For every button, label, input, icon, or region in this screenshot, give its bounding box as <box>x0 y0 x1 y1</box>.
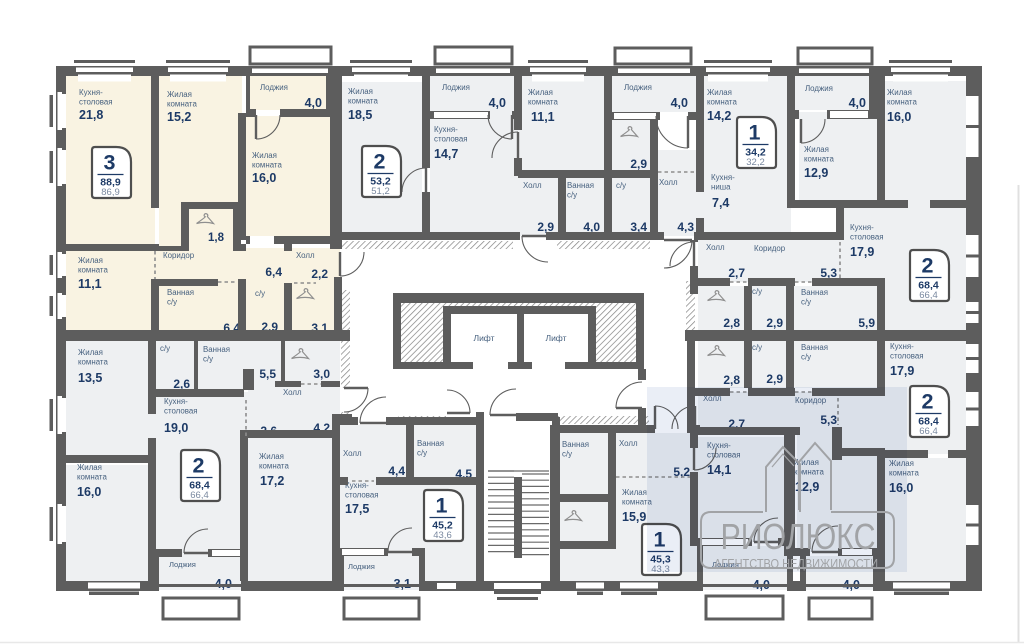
svg-text:2: 2 <box>193 454 205 478</box>
svg-text:Лоджия: Лоджия <box>805 84 833 93</box>
svg-text:с/у: с/у <box>616 181 626 190</box>
svg-text:17,5: 17,5 <box>345 502 369 516</box>
svg-text:2: 2 <box>374 150 386 174</box>
svg-text:5,3: 5,3 <box>820 266 837 280</box>
svg-text:11,1: 11,1 <box>531 110 555 124</box>
svg-text:18,5: 18,5 <box>348 108 372 122</box>
svg-text:2,9: 2,9 <box>766 316 783 330</box>
svg-text:11,1: 11,1 <box>78 277 102 291</box>
svg-text:2,2: 2,2 <box>311 267 328 281</box>
svg-text:12,9: 12,9 <box>804 166 828 180</box>
svg-text:86,9: 86,9 <box>101 187 120 198</box>
svg-text:Лоджия: Лоджия <box>348 562 375 571</box>
svg-text:5,9: 5,9 <box>858 316 875 330</box>
svg-text:Лифт: Лифт <box>545 333 566 343</box>
svg-text:7,4: 7,4 <box>712 196 729 210</box>
svg-text:с/у: с/у <box>752 343 762 352</box>
svg-text:Холл: Холл <box>706 243 725 252</box>
svg-text:2,8: 2,8 <box>723 373 740 387</box>
svg-text:14,7: 14,7 <box>434 147 458 161</box>
svg-text:6,4: 6,4 <box>265 265 282 279</box>
svg-text:4,0: 4,0 <box>489 96 506 110</box>
svg-text:Лоджия: Лоджия <box>442 83 470 92</box>
svg-text:Коридор: Коридор <box>754 244 786 253</box>
svg-text:17,9: 17,9 <box>850 245 874 259</box>
svg-text:2,9: 2,9 <box>766 372 783 386</box>
svg-text:4,0: 4,0 <box>849 96 866 110</box>
svg-text:Холл: Холл <box>659 178 678 187</box>
svg-text:17,9: 17,9 <box>890 364 914 378</box>
svg-text:16,0: 16,0 <box>77 485 101 499</box>
svg-text:4,0: 4,0 <box>583 220 600 234</box>
svg-text:16,0: 16,0 <box>887 110 911 124</box>
svg-text:Холл: Холл <box>343 449 362 458</box>
svg-text:4,0: 4,0 <box>671 96 688 110</box>
svg-text:32,2: 32,2 <box>746 157 765 168</box>
svg-text:Холл: Холл <box>283 388 302 397</box>
svg-text:Лоджия: Лоджия <box>169 560 196 569</box>
svg-text:Лоджия: Лоджия <box>260 83 288 92</box>
svg-text:17,2: 17,2 <box>260 474 284 488</box>
svg-text:19,0: 19,0 <box>164 421 188 435</box>
svg-text:Лифт: Лифт <box>473 333 494 343</box>
svg-text:3: 3 <box>104 151 116 175</box>
svg-text:1: 1 <box>436 494 448 518</box>
svg-text:Коридор: Коридор <box>163 251 195 260</box>
svg-text:2,6: 2,6 <box>173 377 190 391</box>
svg-text:13,5: 13,5 <box>78 371 102 385</box>
svg-text:3,0: 3,0 <box>313 367 330 381</box>
svg-text:с/у: с/у <box>255 289 265 298</box>
svg-text:66,4: 66,4 <box>190 490 209 501</box>
svg-text:4,0: 4,0 <box>305 96 322 110</box>
svg-text:16,0: 16,0 <box>252 171 276 185</box>
svg-text:21,8: 21,8 <box>79 108 103 122</box>
svg-text:с/у: с/у <box>160 344 170 353</box>
svg-text:2: 2 <box>922 254 934 278</box>
svg-text:Холл: Холл <box>296 251 315 260</box>
svg-text:14,2: 14,2 <box>707 109 731 123</box>
svg-text:2,7: 2,7 <box>728 266 745 280</box>
svg-text:15,2: 15,2 <box>167 110 191 124</box>
svg-text:Лоджия: Лоджия <box>624 83 652 92</box>
svg-text:2,8: 2,8 <box>723 316 740 330</box>
svg-text:с/у: с/у <box>752 287 762 296</box>
svg-text:4,4: 4,4 <box>388 464 405 478</box>
svg-text:1: 1 <box>749 121 761 145</box>
svg-text:4,3: 4,3 <box>677 220 694 234</box>
svg-text:2: 2 <box>922 390 934 414</box>
svg-text:5,5: 5,5 <box>259 367 276 381</box>
svg-text:2,9: 2,9 <box>630 157 647 171</box>
svg-text:66,4: 66,4 <box>919 426 938 437</box>
svg-text:Холл: Холл <box>619 439 638 448</box>
svg-text:Холл: Холл <box>523 181 542 190</box>
svg-text:66,4: 66,4 <box>919 290 938 301</box>
svg-text:3,4: 3,4 <box>630 220 647 234</box>
svg-text:43,6: 43,6 <box>433 530 452 541</box>
svg-text:15,9: 15,9 <box>622 510 646 524</box>
svg-text:АГЕНТСТВО НЕДВИЖИМОСТИ: АГЕНТСТВО НЕДВИЖИМОСТИ <box>714 557 878 571</box>
svg-text:1,8: 1,8 <box>208 232 225 244</box>
svg-text:2,9: 2,9 <box>537 220 554 234</box>
svg-text:РИОЛЮКС: РИОЛЮКС <box>721 516 876 557</box>
svg-text:51,2: 51,2 <box>371 186 390 197</box>
